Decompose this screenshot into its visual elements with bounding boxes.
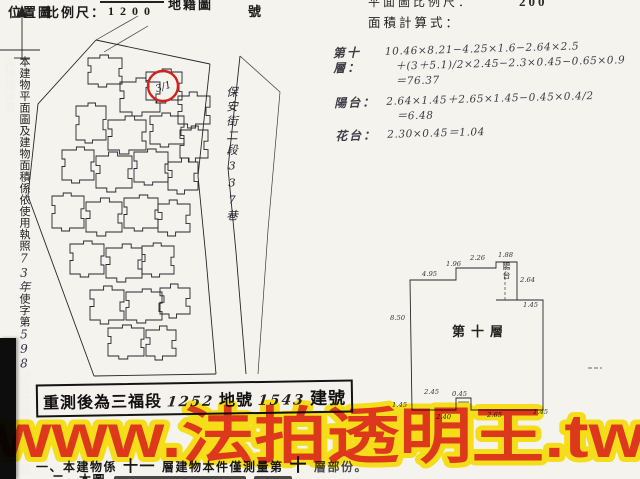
dimension-label: 2.65: [486, 411, 502, 419]
dimension-label: 1.45: [533, 408, 548, 416]
dimension-label: 0.45: [452, 390, 467, 398]
room-label: 第十層: [452, 324, 509, 339]
building-footprint: [178, 92, 210, 128]
scale-label: 比例尺：: [46, 2, 106, 21]
scale-fraction: 1200: [100, 1, 164, 19]
street-name-label: 保安街二段337巷: [224, 86, 240, 301]
building-footprint: [106, 244, 142, 282]
building-footprint: [160, 284, 190, 318]
building-footprint: [108, 116, 146, 154]
building-footprint: [62, 147, 94, 183]
floor-outline: [410, 262, 543, 410]
dimension-label: 1.45: [392, 401, 407, 409]
calc-balcony-row: 陽台： 2.64×1.45＋2.65×1.45−0.45×0.4/2 ＝6.48: [334, 88, 640, 127]
building-footprint: [134, 149, 168, 185]
building-footprint: [168, 158, 198, 194]
stamp-prefix: 重測後為三福段: [43, 388, 162, 414]
floor-plan: 第十層 8.50 4.95 1.96 2.26 1.88 2.64 1.45 2…: [390, 251, 602, 421]
note1-suffix: 層部份。: [314, 458, 368, 475]
dimension-label: 1.88: [498, 251, 514, 259]
plan-scale-label: 平面圖比例尺：: [368, 0, 473, 9]
note1-floor: 十: [290, 451, 309, 476]
dimension-label: 2.45: [423, 388, 439, 396]
building-footprint: [142, 243, 174, 277]
stamp-building-number: 1543: [257, 392, 306, 409]
building-footprint: [70, 241, 104, 277]
building-footprint: [180, 126, 208, 162]
left-margin-note: 本建物平面圖及建物面積係依使用執照73年使字第598號設計圖或竣工平面圖轉繪計算: [1, 56, 31, 479]
building-footprint: [158, 200, 190, 236]
calc-planter-label: 花台：: [335, 128, 387, 144]
balcony-label: 陽台: [501, 262, 512, 280]
building-footprint: [108, 325, 144, 359]
resurvey-stamp: 重測後為三福段 1252 地號 1543 建號: [36, 380, 353, 418]
building-footprint: [76, 103, 106, 143]
area-formula-label: 面積計算式：: [368, 12, 461, 31]
plan-scale: 平面圖比例尺：200: [368, 0, 548, 10]
dimension-label: 2.26: [469, 254, 486, 262]
building-footprints: [52, 55, 210, 360]
dimension-label: 8.50: [390, 314, 406, 322]
calc-balcony-label: 陽台：: [334, 95, 387, 126]
scanned-survey-document: 位置圖 比例尺： 1200 地籍圖 號 平面圖比例尺：200 面積計算式： 本建…: [0, 0, 640, 479]
parcel-number-label: 3/1: [154, 80, 173, 95]
calc-floor-row: 第十層： 10.46×8.21−4.25×1.6−2.64×2.5 ＋(3＋5.…: [333, 38, 640, 92]
building-footprint: [124, 195, 158, 231]
dimension-label: 2.64: [519, 276, 535, 284]
dimension-label: 4.95: [421, 270, 437, 278]
note-hand-number: 598: [17, 328, 31, 372]
sheet-number-label: 號: [248, 1, 263, 20]
building-footprint: [146, 69, 182, 103]
building-footprint: [126, 289, 162, 323]
subject-parcel-circle: [148, 71, 178, 101]
building-footprint: [146, 326, 176, 360]
note-printed-1: 本建物平面圖及建物面積係依使用執照: [18, 56, 30, 252]
cadastral-map-label: 地籍圖: [168, 0, 213, 13]
dimension-label: 2.40: [435, 413, 452, 421]
site-map: 3/1: [28, 16, 280, 376]
building-footprint: [88, 55, 122, 87]
building-footprint: [52, 193, 84, 231]
building-footprint: [90, 286, 124, 324]
calc-floor-label: 第十層：: [333, 45, 386, 91]
dimension-label: 1.45: [523, 301, 538, 309]
note-line-2: 二、本圖: [52, 471, 292, 479]
building-footprint: [86, 198, 122, 236]
building-footprint: [96, 152, 132, 192]
building-footprint: [150, 113, 184, 147]
note2-prefix: 二、本圖: [52, 471, 106, 479]
building-footprint: [120, 78, 160, 116]
note-printed-2: 使字第: [18, 293, 30, 328]
area-calculations: 第十層： 10.46×8.21−4.25×1.6−2.64×2.5 ＋(3＋5.…: [333, 38, 640, 145]
stamp-land-label: 地號: [219, 386, 253, 411]
stamp-building-label: 建號: [310, 384, 346, 410]
note-hand-year: 73年: [17, 252, 31, 294]
calc-line: 2.30×0.45＝1.04: [387, 121, 640, 143]
plan-scale-value: 200: [519, 0, 548, 9]
dimension-label: 1.96: [446, 260, 462, 268]
stamp-land-number: 1252: [166, 394, 215, 411]
